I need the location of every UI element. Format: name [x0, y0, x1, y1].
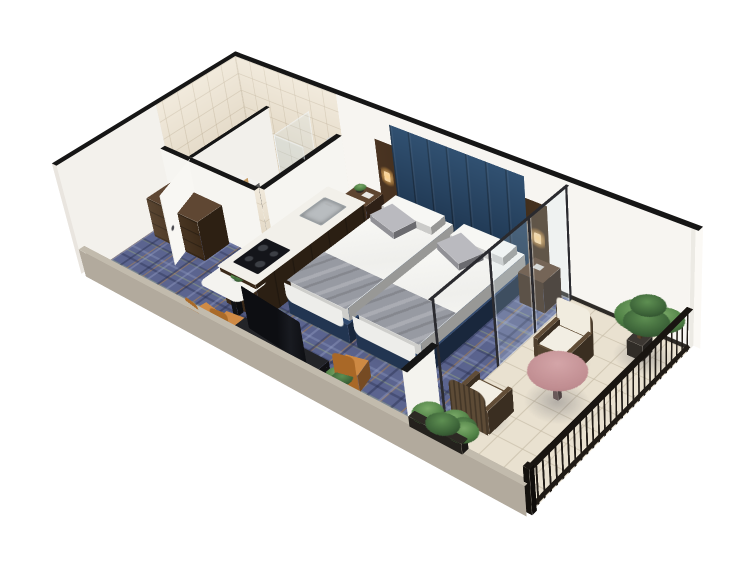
floorplan-3d-render — [0, 0, 756, 567]
render-stage — [0, 0, 756, 567]
